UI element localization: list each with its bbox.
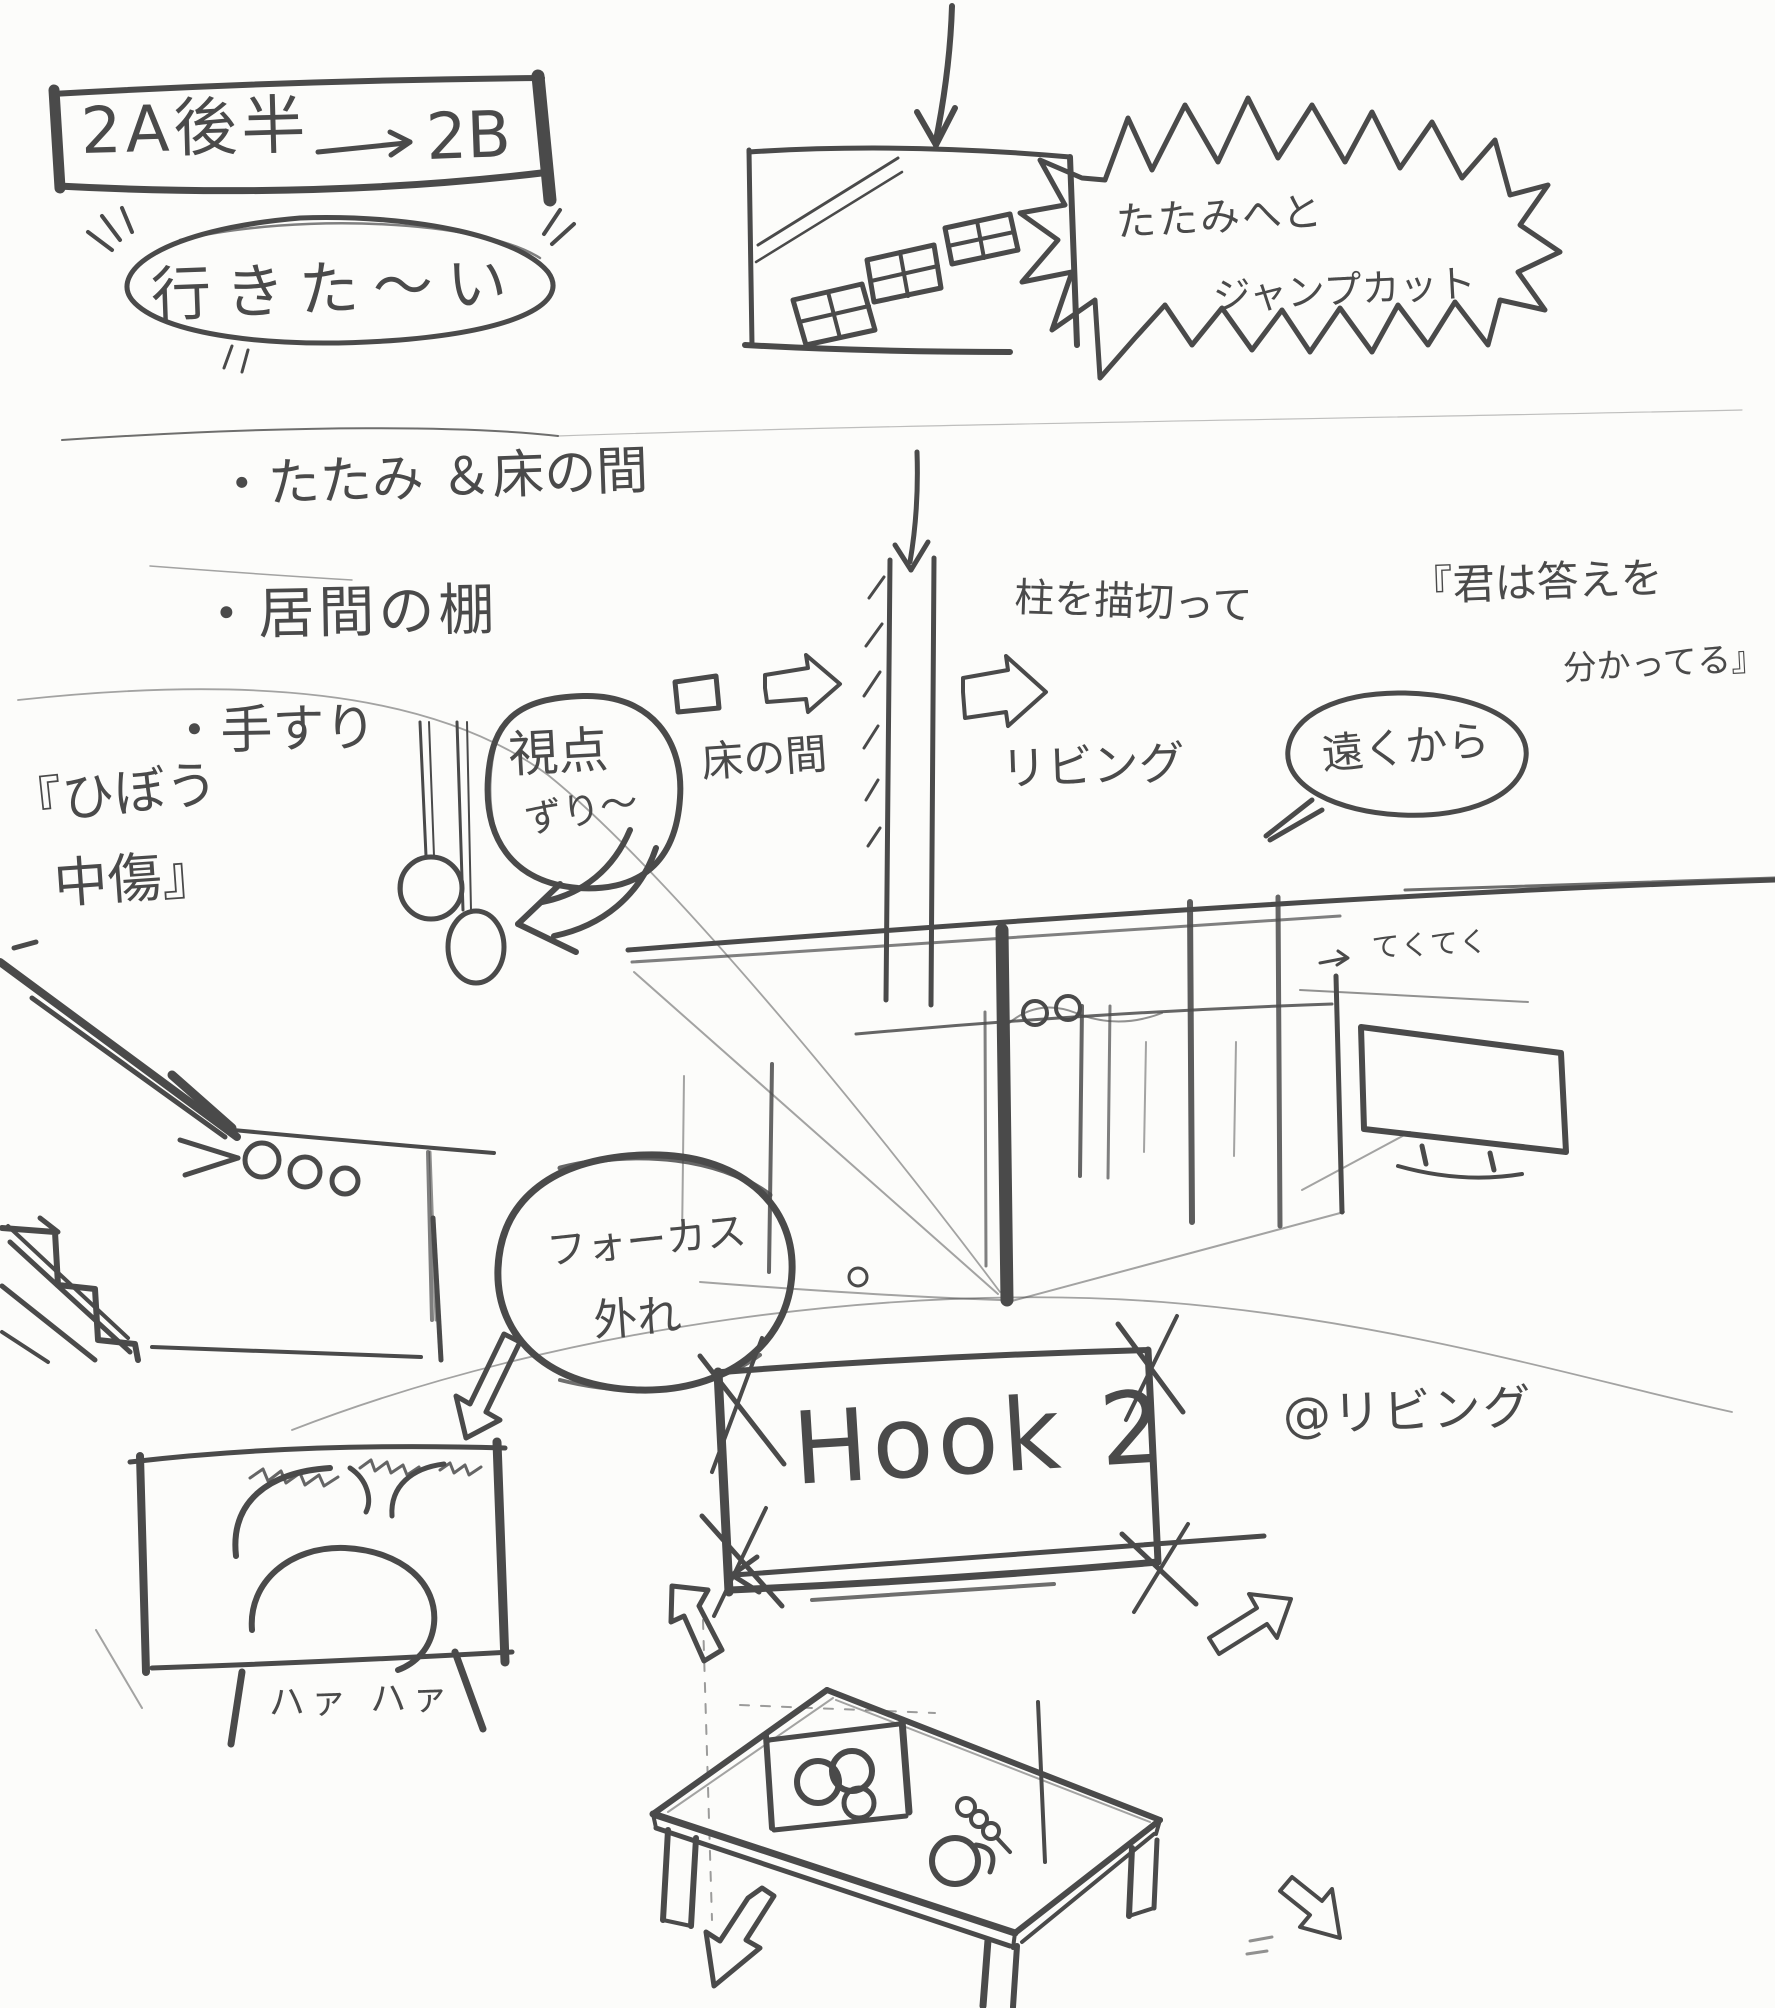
mug-and-skewer	[932, 1798, 1010, 1884]
lyric-quote-line2: 分かってる』	[1562, 641, 1766, 686]
desire-bubble-label: 行きた〜い	[150, 253, 522, 326]
walking-sfx-label: てくてく	[1371, 928, 1490, 962]
scene-header-to-label: 2B	[425, 103, 512, 170]
lamp-ball-icon	[448, 911, 504, 983]
pant-slash-icon	[455, 1652, 483, 1729]
pant-slash-icon	[231, 1672, 242, 1744]
checklist-item-shelf: ・居間の棚	[198, 583, 499, 644]
low-table-sketch	[653, 1536, 1264, 2007]
header-arrow-icon	[318, 132, 410, 155]
handrail-counter-sketch	[0, 942, 494, 1360]
rail-knob-icon	[290, 1157, 320, 1187]
rail-knob-icon	[332, 1168, 358, 1194]
rail-arrowhead-icon	[180, 1140, 238, 1175]
block-arrow-right-icon	[765, 655, 840, 712]
jump-cut-burst-outline	[1020, 98, 1560, 378]
block-arrow-down-left-icon	[706, 1888, 774, 1986]
door-handle-icon	[849, 1268, 867, 1286]
staircase-sketch	[2, 1218, 138, 1362]
down-arrow-into-panel-icon	[917, 6, 955, 145]
blurred-head-icon	[252, 1548, 435, 1670]
block-arrow-down-right-icon	[1280, 1877, 1340, 1938]
table-leg	[1129, 1840, 1157, 1916]
block-arrow-up-left-icon	[671, 1586, 722, 1661]
down-arrow-to-pillar-icon	[895, 452, 928, 570]
storyboard-page: 2A後半 2B 行きた〜い たたみへと ジャンプカット ・たたみ ＆床の間 ・居…	[0, 0, 1775, 2008]
table-leg	[663, 1830, 696, 1926]
tokonoma-label: 床の間	[700, 733, 829, 784]
table-leg	[983, 1940, 1017, 2007]
block-arrow-up-right-icon	[1209, 1594, 1291, 1654]
block-arrow-down-left-icon	[456, 1334, 520, 1438]
checklist-item-tatami: ・たたみ ＆床の間	[215, 445, 649, 512]
tv-sketch	[1361, 1027, 1566, 1178]
scene-header-from-label: 2A後半	[80, 94, 310, 164]
walk-arrow-icon	[1320, 951, 1348, 965]
blurred-head-icon	[392, 1464, 444, 1516]
tray-with-dango	[766, 1720, 909, 1830]
pillar-note-label: 柱を描切って	[1014, 578, 1253, 626]
hook-location-label: @リビング	[1282, 1383, 1534, 1440]
tokonoma-square-icon	[675, 676, 719, 712]
checklist-item-handrail: ・手すり	[168, 702, 377, 758]
blurred-head-icon	[235, 1468, 330, 1556]
window-grid-icon	[793, 214, 1018, 345]
panting-sfx-label: ハァ ハァ	[268, 1680, 455, 1722]
tokonoma-sketch	[675, 655, 840, 712]
dark-pillar	[1002, 930, 1007, 1300]
slander-quote-line2: 中傷』	[52, 847, 217, 912]
focus-note-line2: 外れ	[592, 1294, 683, 1344]
lyric-quote-line1: 『君は答えを	[1410, 557, 1663, 608]
rail-knob-icon	[245, 1143, 279, 1177]
flow-arrows	[1209, 1594, 1340, 1954]
living-room-sketch	[628, 878, 1775, 1302]
living-room-label: リビング	[1000, 740, 1185, 792]
jump-cut-burst-line1: たたみへと	[1115, 192, 1325, 243]
block-arrow-to-living-icon	[963, 656, 1046, 726]
window-panel-sketch	[745, 6, 1077, 352]
viewpoint-note-line1: 視点	[507, 725, 609, 780]
hook-title-label: Hook 2	[790, 1377, 1170, 1500]
